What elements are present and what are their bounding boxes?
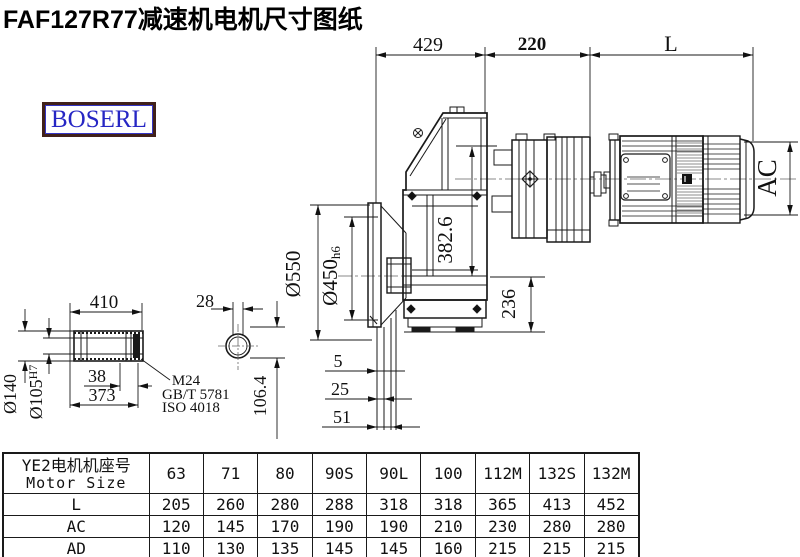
top-dimension-chain xyxy=(376,47,753,203)
table-cell: 413 xyxy=(530,494,584,516)
table-cell: 260 xyxy=(203,494,257,516)
dim-51-label: 51 xyxy=(333,407,351,427)
dim-410-label: 410 xyxy=(90,292,119,313)
table-cell: 215 xyxy=(584,538,638,557)
dim-429-label: 429 xyxy=(413,34,443,56)
table-cell: 145 xyxy=(203,516,257,538)
table-row: L 205 260 280 288 318 318 365 413 452 xyxy=(3,494,639,516)
dim-140-label: Ø140 xyxy=(0,374,20,414)
table-cell: 120 xyxy=(149,516,203,538)
table-cell: 190 xyxy=(367,516,421,538)
column-header: 90L xyxy=(367,453,421,494)
input-adapter xyxy=(492,134,610,242)
row-label: L xyxy=(3,494,149,516)
table-header-row: YE2电机机座号 Motor Size 63 71 80 90S 90L 100… xyxy=(3,453,639,494)
dim-AC-label: AC xyxy=(752,159,782,197)
dim-106-label: 106.4 xyxy=(250,376,270,417)
dim-28-label: 28 xyxy=(196,291,214,311)
table-cell: 190 xyxy=(312,516,366,538)
column-header: 100 xyxy=(421,453,475,494)
column-header: 112M xyxy=(475,453,529,494)
motor-size-table: YE2电机机座号 Motor Size 63 71 80 90S 90L 100… xyxy=(2,452,640,557)
column-header: 71 xyxy=(203,453,257,494)
dim-25-label: 25 xyxy=(331,379,349,399)
column-header: 132S xyxy=(530,453,584,494)
motor-size-label-cn: YE2电机机座号 xyxy=(4,456,149,475)
dim-450h6-label: Ø450h6 xyxy=(318,246,343,306)
table-cell: 280 xyxy=(530,516,584,538)
table-cell: 145 xyxy=(312,538,366,557)
table-cell: 205 xyxy=(149,494,203,516)
table-cell: 280 xyxy=(258,494,312,516)
table-cell: 130 xyxy=(203,538,257,557)
dim-236-label: 236 xyxy=(498,289,520,319)
dim-L-label: L xyxy=(664,31,677,56)
table-cell: 170 xyxy=(258,516,312,538)
thread-callout-iso: ISO 4018 xyxy=(162,400,220,416)
dim-220-label: 220 xyxy=(518,34,547,55)
column-header: 80 xyxy=(258,453,312,494)
column-header: 90S xyxy=(312,453,366,494)
table-cell: 110 xyxy=(149,538,203,557)
table-row: AC 120 145 170 190 190 210 230 280 280 xyxy=(3,516,639,538)
row-label: AC xyxy=(3,516,149,538)
table-cell: 230 xyxy=(475,516,529,538)
shaft-section-circle xyxy=(211,301,285,439)
dim-550-label: Ø550 xyxy=(281,251,305,298)
table-cell: 318 xyxy=(367,494,421,516)
table-cell: 145 xyxy=(367,538,421,557)
dim-382-label: 382.6 xyxy=(433,216,457,263)
table-cell: 215 xyxy=(475,538,529,557)
table-cell: 318 xyxy=(421,494,475,516)
row-label: AD xyxy=(3,538,149,557)
table-cell: 288 xyxy=(312,494,366,516)
table-cell: 452 xyxy=(584,494,638,516)
table-cell: 135 xyxy=(258,538,312,557)
drawing-sheet: FAF127R77减速机电机尺寸图纸 BOSERL xyxy=(0,0,800,557)
table-header-motor-size: YE2电机机座号 Motor Size xyxy=(3,453,149,494)
dim-105H7-label: Ø105H7 xyxy=(26,365,46,420)
table-cell: 160 xyxy=(421,538,475,557)
table-cell: 280 xyxy=(584,516,638,538)
table-cell: 215 xyxy=(530,538,584,557)
dim-38-label: 38 xyxy=(88,366,106,386)
column-header: 63 xyxy=(149,453,203,494)
motor-size-label-en: Motor Size xyxy=(4,475,149,492)
dim-373-label: 373 xyxy=(89,385,116,405)
table-row: AD 110 130 135 145 145 160 215 215 215 xyxy=(3,538,639,557)
dim-5-label: 5 xyxy=(334,351,343,371)
table-cell: 210 xyxy=(421,516,475,538)
table-cell: 365 xyxy=(475,494,529,516)
column-header: 132M xyxy=(584,453,638,494)
